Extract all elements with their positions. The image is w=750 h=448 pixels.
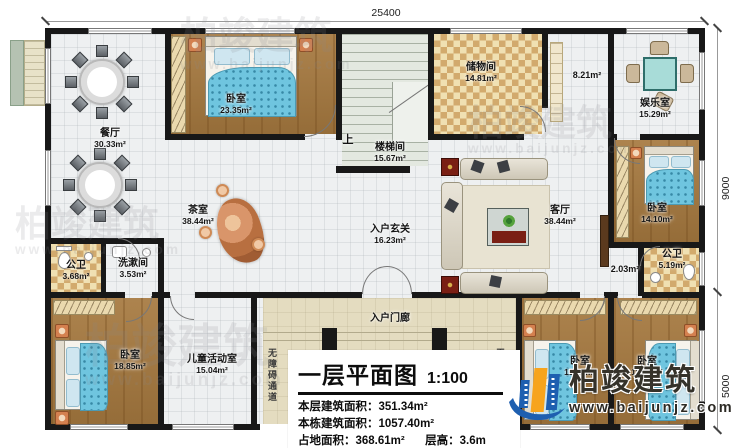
dim-right-lower-value: 5000 (720, 342, 732, 398)
game-chair (680, 64, 694, 83)
room-label-dining: 餐厅30.33m² (80, 128, 140, 150)
bed-headboard (206, 37, 296, 47)
dining-chair (94, 210, 106, 222)
dim-line-right (717, 28, 718, 430)
floor-plan-canvas: 柏竣建筑 www.baijunjz.com 柏竣建筑 www.baijunjz.… (0, 0, 750, 448)
dining-chair (96, 107, 108, 119)
bed-pillow (214, 48, 250, 65)
stairs-up-label: 上 (340, 135, 356, 146)
side-table (441, 158, 459, 176)
hall-cabinet (550, 42, 563, 122)
plan-title: 一层平面图 (298, 356, 418, 390)
bed-pillow (649, 156, 669, 168)
coffee-table-tray (492, 231, 526, 243)
dim-line-top (45, 21, 705, 22)
title-block: 一层平面图 1:100 本层建筑面积：351.34m² 本栋建筑面积：1057.… (288, 350, 520, 448)
dining-table (77, 162, 123, 208)
dining-chair (127, 76, 139, 88)
porch-step-line (263, 332, 516, 333)
logo-url-text: www.baijunjz.com (569, 400, 734, 416)
wall-stair-west (336, 28, 342, 140)
nightstand (684, 324, 697, 337)
bed-headboard (56, 341, 65, 409)
tea-stool (216, 184, 229, 197)
plant (503, 215, 515, 227)
closet-bedroom-bl (53, 300, 115, 315)
side-table (441, 276, 459, 294)
room-label-porch: 入户门廊 (348, 313, 432, 324)
window (172, 424, 234, 430)
dining-chair (125, 179, 137, 191)
throw-pillow (489, 275, 502, 288)
dining-table (79, 59, 125, 105)
game-chair (626, 64, 640, 83)
sofa-left (441, 182, 463, 270)
ramp-label-left: 无障碍通道 (266, 348, 279, 418)
logo-brand-text: 柏竣建筑 (569, 366, 697, 396)
wall-storage-east (542, 28, 548, 108)
coffee-table (487, 208, 529, 246)
window (88, 28, 152, 34)
wall-hall-ent (608, 28, 614, 138)
window (626, 28, 688, 34)
wall-kids-north (195, 292, 257, 298)
room-label-storage: 储物间14.81m² (446, 62, 516, 84)
area-label-nook: 2.03m² (604, 264, 646, 275)
side-porch-green (10, 40, 24, 106)
area-label-hall: 8.21m² (562, 70, 612, 81)
dim-top-value: 25400 (336, 7, 436, 19)
room-label-bath-left: 公卫3.68m² (50, 260, 102, 282)
stat-footprint-and-height: 占地面积：368.61m² 层高：3.6m (298, 433, 510, 448)
room-label-entertainment: 娱乐室15.29m² (622, 98, 688, 120)
bed-blanket (646, 169, 694, 205)
room-label-bedroom-bl: 卧室18.85m² (98, 350, 162, 372)
side-porch-deck (24, 40, 45, 106)
room-label-tea: 茶室38.44m² (168, 205, 228, 227)
wall-storage-south (428, 134, 524, 140)
wall-dining-bedroom (165, 28, 171, 140)
wall-storage-west (428, 28, 434, 140)
sink (142, 248, 151, 257)
bed-pillow (66, 379, 80, 407)
room-label-wash: 洗漱间3.53m² (102, 258, 164, 280)
dining-chair (65, 76, 77, 88)
dining-chair (96, 45, 108, 57)
nightstand (299, 38, 313, 52)
room-label-bath-right: 公卫5.19m² (646, 249, 698, 271)
nightstand (55, 324, 69, 338)
title-underline (298, 392, 503, 395)
wall-stair-south (336, 166, 410, 173)
room-label-bedroom-top: 卧室23.35m² (205, 94, 267, 116)
wall-ent-south-b (640, 134, 705, 140)
stairs-landing (392, 82, 428, 142)
tea-stool (252, 238, 265, 251)
plan-scale: 1:100 (427, 370, 468, 388)
window (450, 28, 522, 34)
wall-south-mid-c (642, 292, 705, 298)
room-label-bedroom-right: 卧室14.10m² (626, 203, 688, 225)
room-label-living: 客厅38.44m² (528, 205, 592, 227)
porch-step-line (263, 340, 516, 341)
toilet-tank (56, 246, 72, 251)
window (699, 252, 705, 286)
nightstand (55, 411, 69, 425)
game-chair (650, 41, 669, 55)
closet-bedroom-top (171, 36, 186, 133)
stat-floor-area: 本层建筑面积：351.34m² (298, 399, 510, 416)
sink (650, 272, 661, 283)
wall-bl-north-a (45, 292, 125, 298)
window (45, 48, 51, 104)
window (205, 28, 295, 34)
window (70, 424, 128, 430)
window (699, 160, 705, 206)
game-table (643, 57, 677, 91)
dim-right-upper-value: 9000 (720, 140, 732, 200)
dining-chair (63, 179, 75, 191)
window (699, 52, 705, 110)
bed-headboard (645, 147, 693, 155)
room-label-stairwell: 楼梯间15.67m² (358, 142, 422, 164)
bed-pillow (671, 156, 691, 168)
logo-mark-icon (505, 362, 571, 426)
wall-porch-north-a (257, 292, 362, 298)
sofa-bottom (460, 272, 548, 294)
wall-bedroom-top-south (165, 134, 305, 140)
bed-pillow (254, 48, 290, 65)
room-label-foyer: 入户玄关16.23m² (350, 224, 430, 246)
window (45, 150, 51, 206)
wash-basin (112, 246, 127, 258)
brand-logo: 柏竣建筑 www.baijunjz.com (505, 360, 710, 430)
tea-stool (199, 226, 212, 239)
room-label-kids: 儿童活动室15.04m² (168, 354, 256, 376)
stat-total-area: 本栋建筑面积：1057.40m² (298, 416, 510, 433)
nightstand (523, 324, 536, 337)
bed-pillow (66, 347, 80, 375)
tv-cabinet (600, 215, 609, 267)
nightstand (188, 38, 202, 52)
nightstand (630, 147, 642, 159)
bed-bedroom-right (644, 146, 694, 204)
